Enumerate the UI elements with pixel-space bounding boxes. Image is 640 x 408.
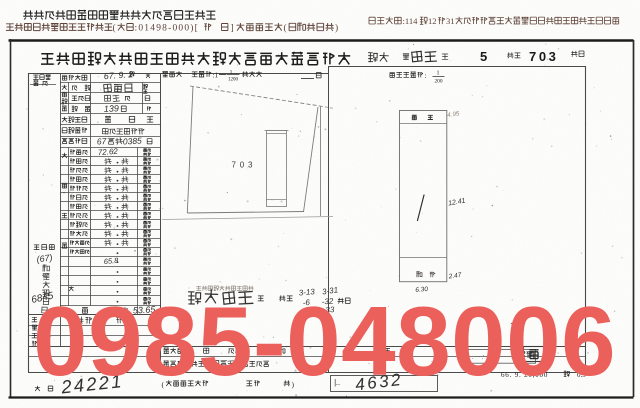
svg-text:67. 9. 2: 67. 9. 2 — [103, 69, 133, 81]
svg-text:12: 12 — [428, 16, 437, 26]
svg-text:72.62: 72.62 — [98, 147, 119, 157]
svg-text:31: 31 — [446, 16, 455, 26]
svg-text::01498-000)[: :01498-000)[ — [135, 23, 200, 34]
svg-text:7 0 3: 7 0 3 — [232, 161, 254, 170]
svg-text::1: :1 — [213, 72, 219, 80]
svg-text::: : — [425, 72, 427, 80]
svg-text:7 0 3: 7 0 3 — [529, 49, 556, 64]
svg-text:): ) — [335, 23, 338, 34]
svg-text:65.8: 65.8 — [103, 256, 119, 266]
svg-text:0385: 0385 — [123, 136, 143, 147]
svg-text:67: 67 — [97, 136, 107, 146]
svg-text:]: ] — [231, 24, 234, 34]
svg-text:0985-048006: 0985-048006 — [33, 286, 616, 396]
svg-text:1: 1 — [437, 71, 440, 77]
svg-text:5: 5 — [480, 49, 487, 64]
svg-text:(: ( — [284, 23, 287, 34]
svg-text:(: ( — [113, 23, 116, 34]
svg-text:139: 139 — [104, 103, 120, 114]
svg-text:200: 200 — [434, 79, 442, 85]
svg-text:1200: 1200 — [228, 78, 239, 83]
svg-text::114: :114 — [403, 16, 419, 26]
